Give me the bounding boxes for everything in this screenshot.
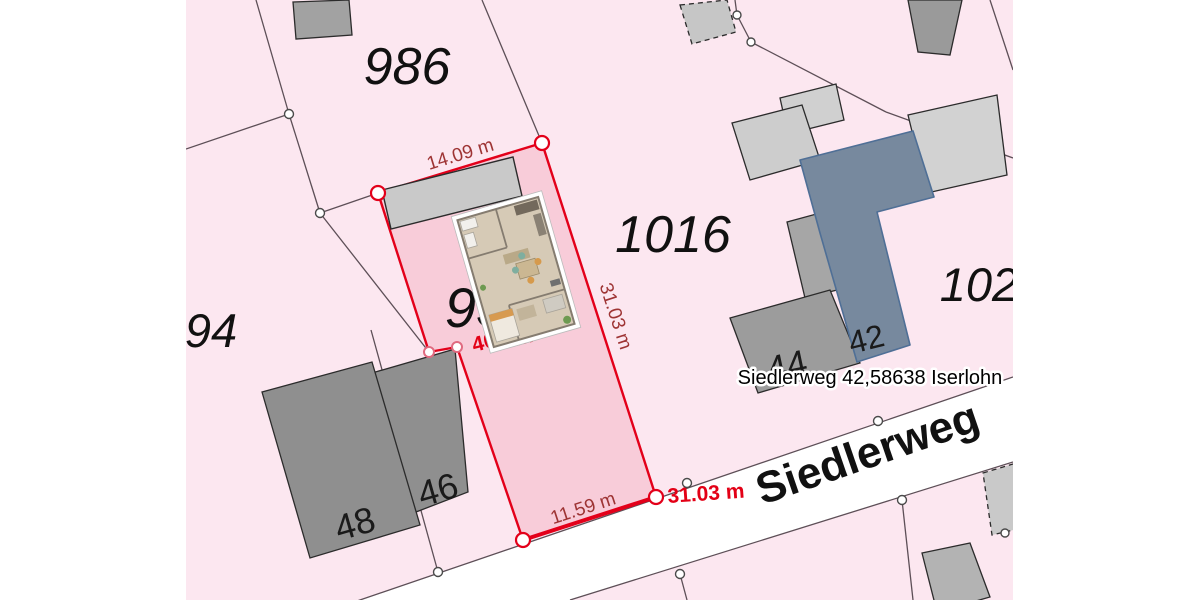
selected-vertex[interactable] xyxy=(516,533,530,547)
cadastral-map-page: 986 1016 94 102 93 40 m² 14.09 m 31.03 m… xyxy=(0,0,1200,600)
parcel-label-986: 986 xyxy=(364,38,451,96)
selected-vertex[interactable] xyxy=(535,136,549,150)
vertex-marker xyxy=(747,38,755,46)
selected-vertex-minor[interactable] xyxy=(424,347,434,357)
vertex-marker xyxy=(733,11,741,19)
vertex-marker xyxy=(1001,529,1009,537)
vertex-marker xyxy=(898,496,907,505)
parcel-label-102: 102 xyxy=(940,258,1013,311)
vertex-marker xyxy=(874,417,883,426)
vertex-marker xyxy=(676,570,685,579)
map-svg: 986 1016 94 102 93 40 m² 14.09 m 31.03 m… xyxy=(186,0,1013,600)
vertex-marker xyxy=(316,209,325,218)
vertex-marker xyxy=(434,568,443,577)
selected-vertex[interactable] xyxy=(371,186,385,200)
vertex-marker xyxy=(285,110,294,119)
selected-vertex-minor[interactable] xyxy=(452,342,462,352)
vertex-marker xyxy=(683,479,692,488)
address-tooltip: Siedlerweg 42,58638 Iserlohn xyxy=(738,367,1003,389)
map-canvas[interactable]: 986 1016 94 102 93 40 m² 14.09 m 31.03 m… xyxy=(186,0,1013,600)
selected-vertex[interactable] xyxy=(649,490,663,504)
parcel-label-94: 94 xyxy=(186,304,237,357)
building xyxy=(293,0,352,39)
parcel-label-1016: 1016 xyxy=(615,206,731,264)
